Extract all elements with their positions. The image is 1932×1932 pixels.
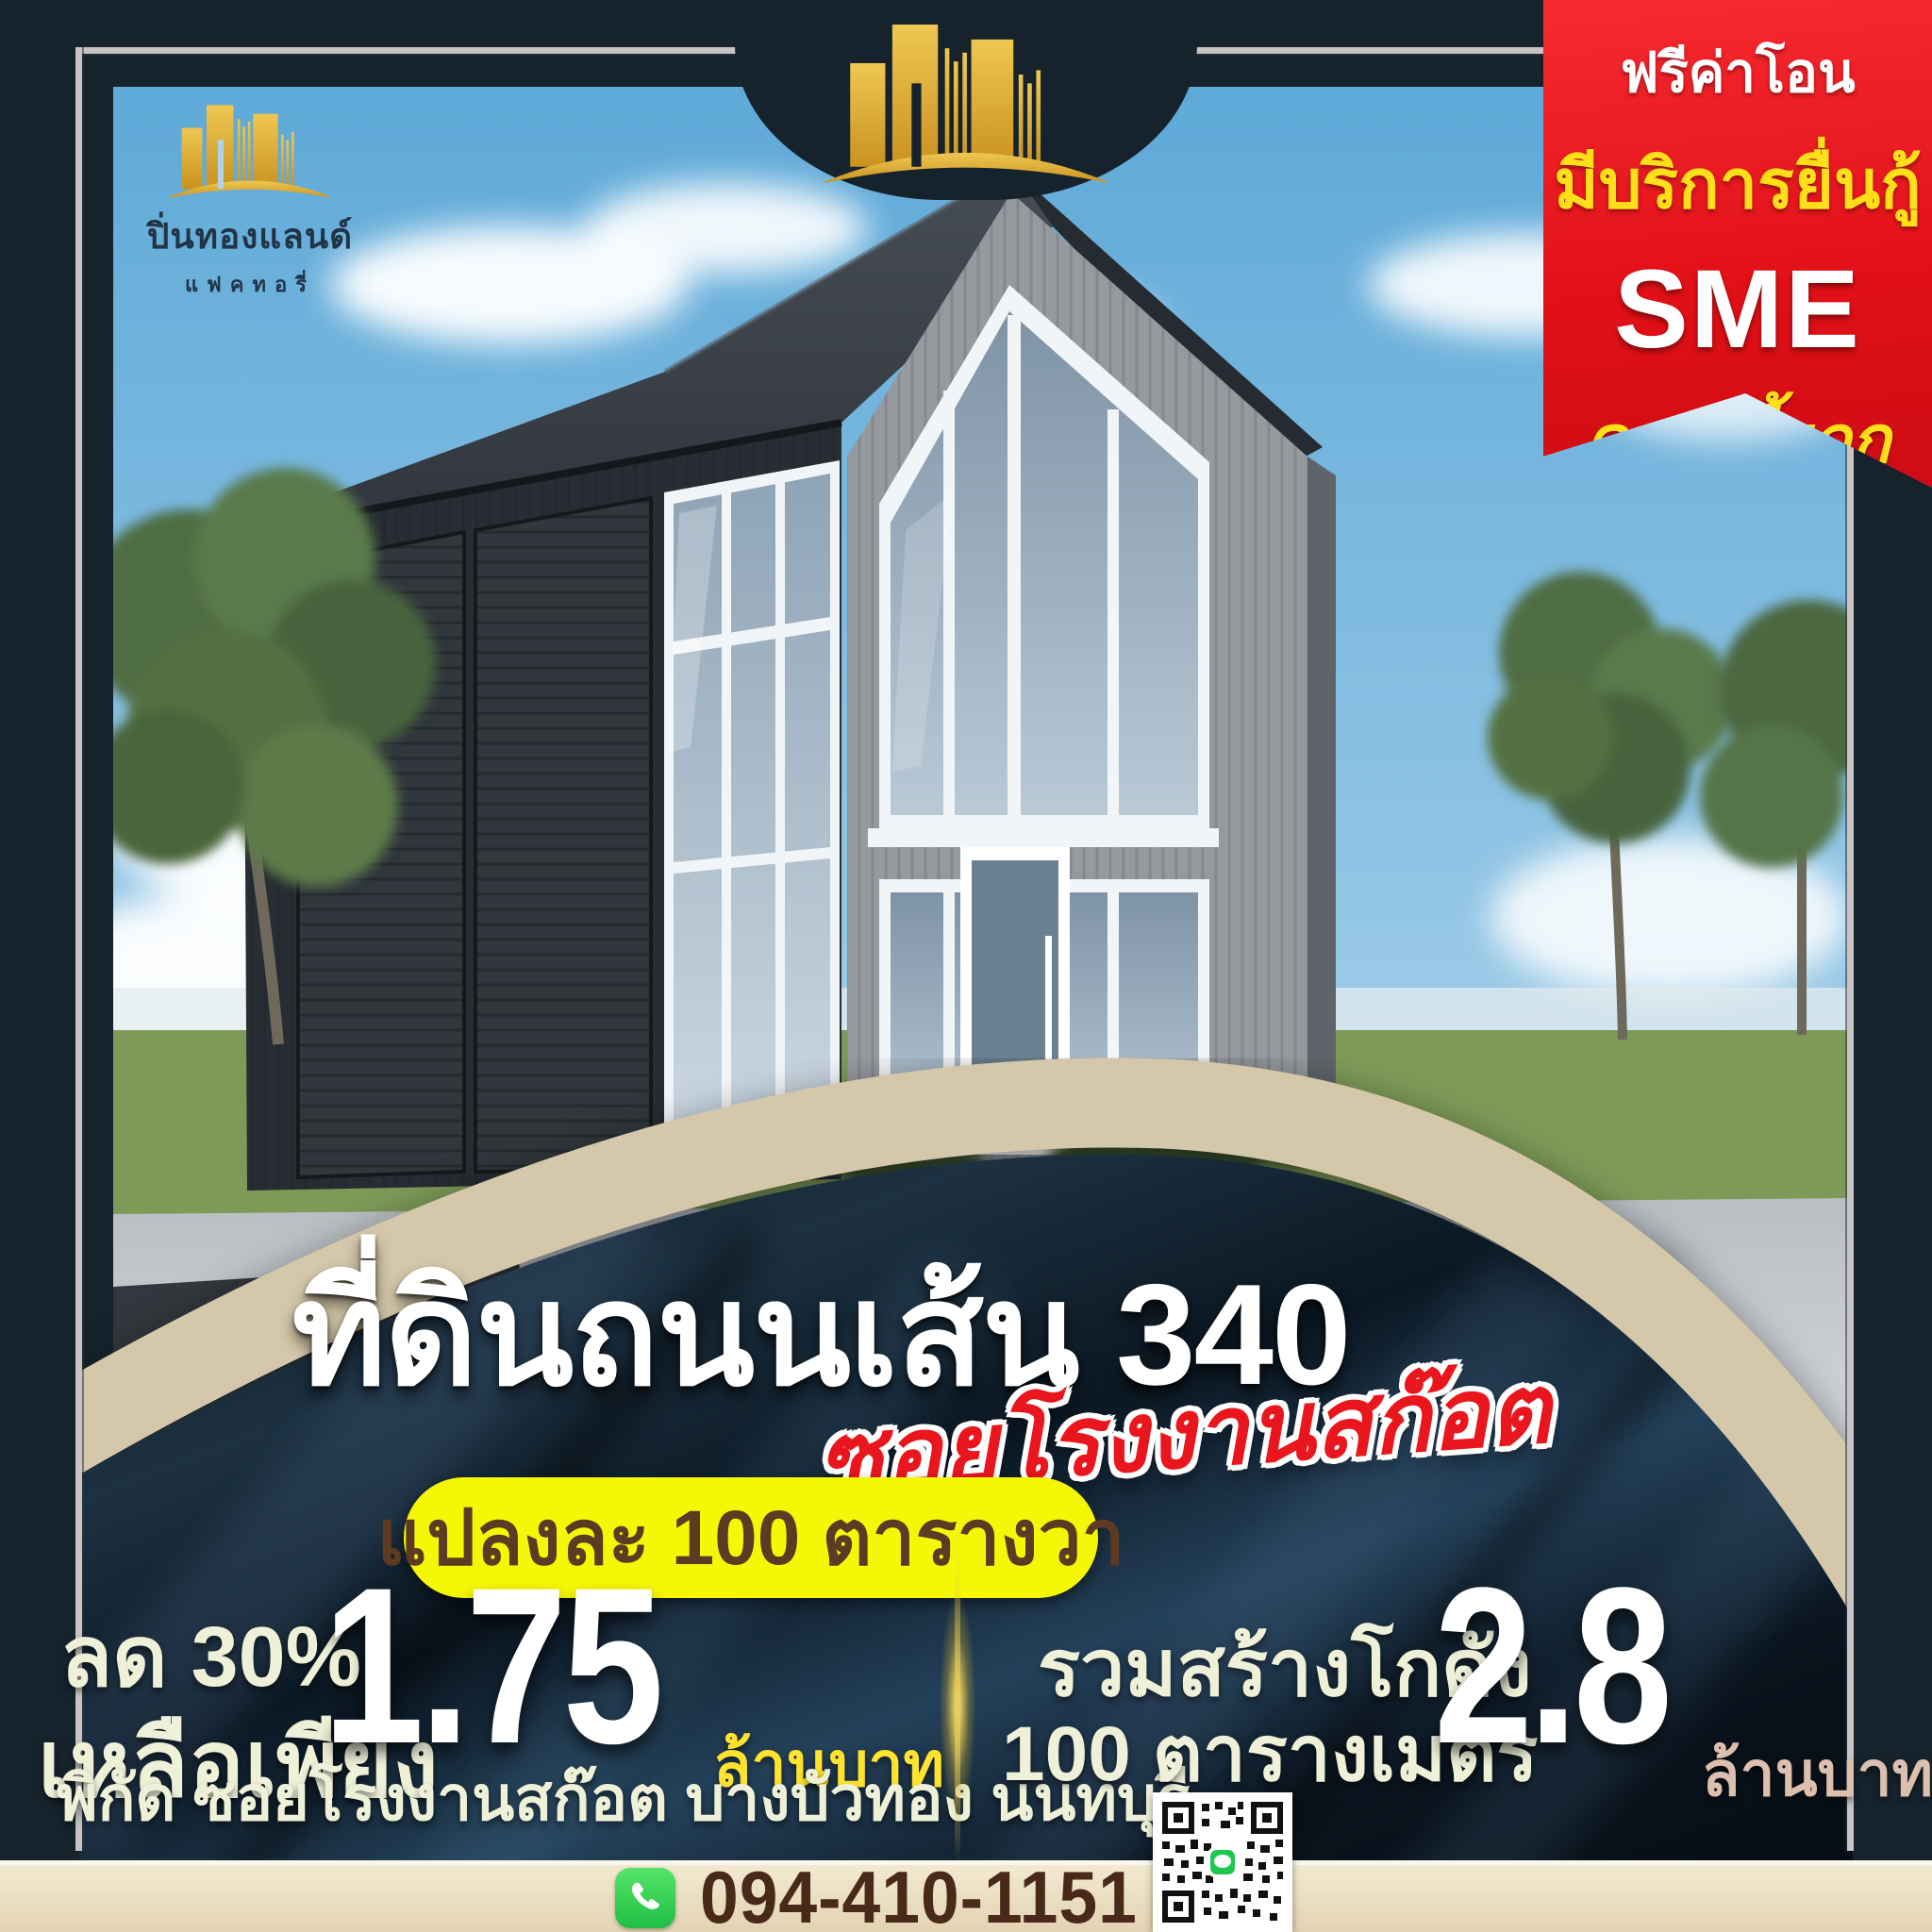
ribbon-line-2: มีบริการยื่นกู้ <box>1543 129 1932 238</box>
frame-line-top-left <box>75 47 738 54</box>
qr-code-graphic <box>1153 1792 1292 1932</box>
ribbon-line-3: SME <box>1543 245 1932 374</box>
brand-subname: แฟคทอรี่ <box>125 268 375 301</box>
gold-skyline-icon-small <box>170 91 330 202</box>
ribbon-line-1: ฟรีค่าโอน <box>1543 28 1932 116</box>
phone-number[interactable]: 094-410-1151 <box>700 1855 1138 1932</box>
gold-skyline-icon <box>824 0 1108 189</box>
frame-line-left <box>75 47 82 1851</box>
brand-logo: ปิ่นทองแลนด์ แฟคทอรี่ <box>125 91 375 301</box>
warehouse-price-unit: ล้านบาท <box>1702 1724 1932 1824</box>
phone-handset-glyph <box>626 1879 664 1917</box>
brand-name: ปิ่นทองแลนด์ <box>125 208 375 264</box>
phone-icon[interactable] <box>615 1868 675 1928</box>
land-price: 1.75 <box>323 1555 659 1777</box>
real-estate-poster: ปิ่นทองแลนด์ แฟคทอรี่ ฟรีค่าโอน มีบริการ… <box>0 0 1932 1932</box>
warehouse-price: 2.8 <box>1434 1555 1668 1777</box>
line-qr-code[interactable] <box>1153 1792 1292 1932</box>
